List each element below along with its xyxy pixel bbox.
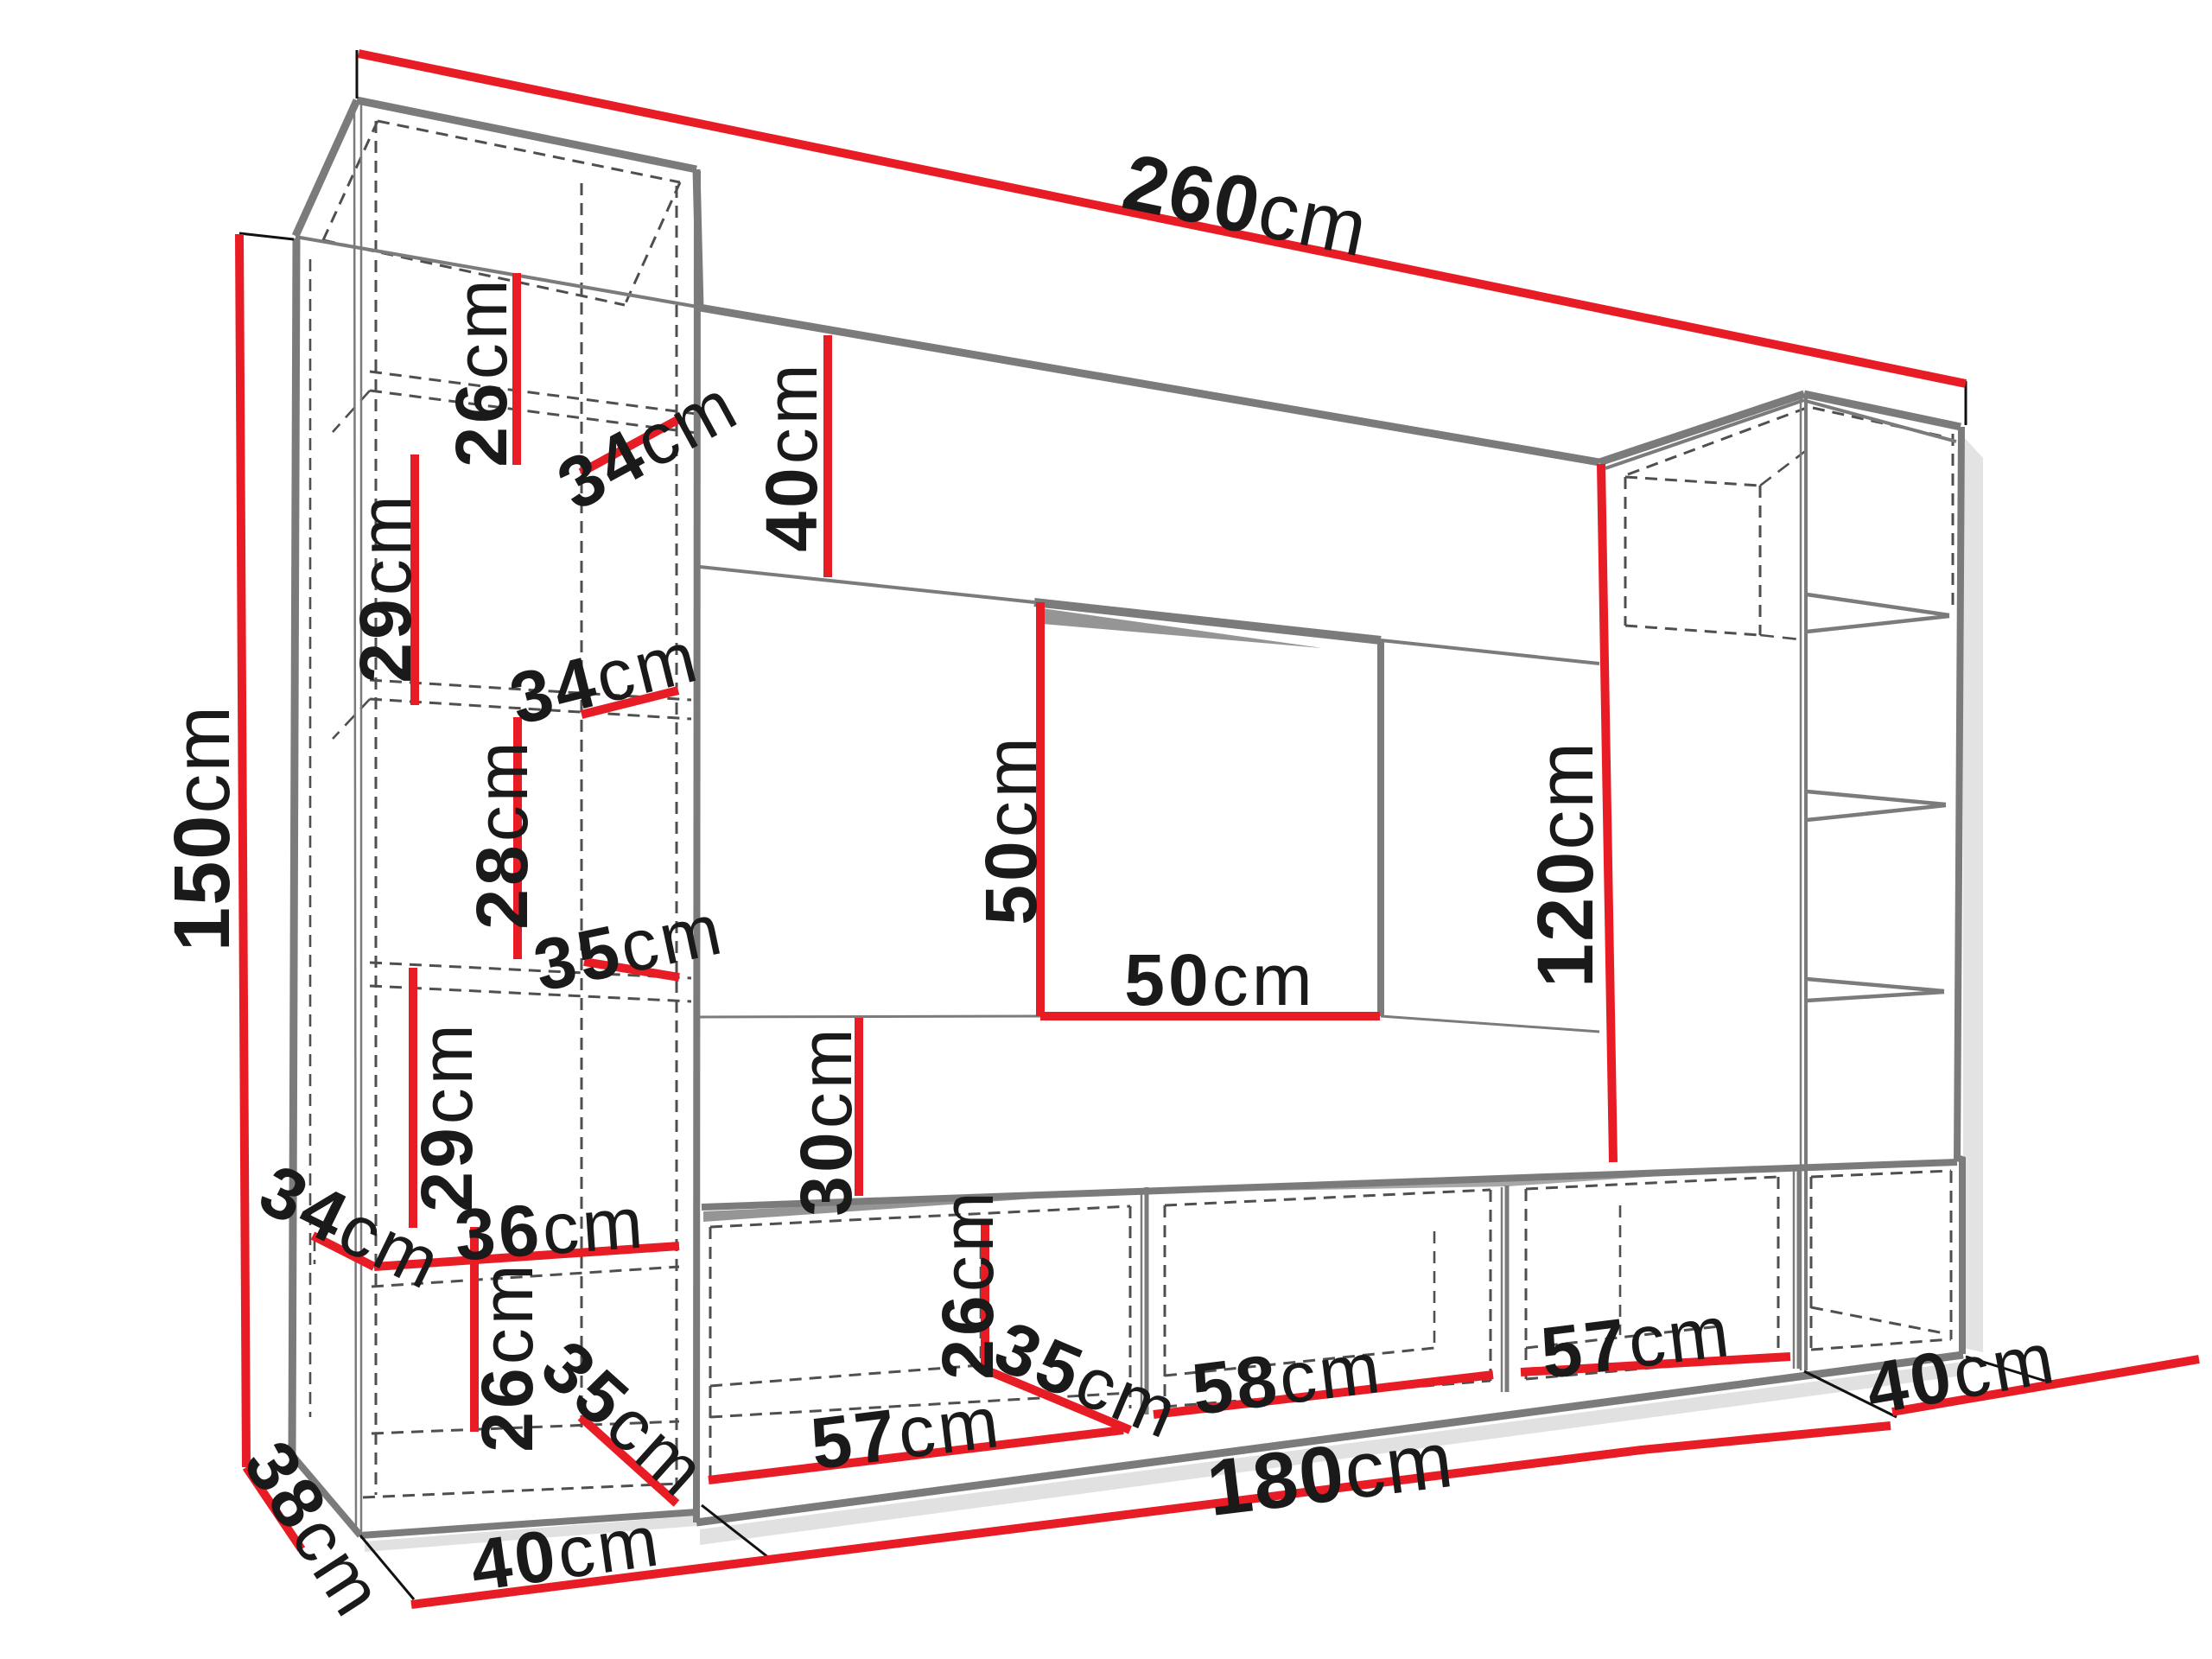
svg-text:30cm: 30cm — [785, 1025, 867, 1216]
svg-text:50cm: 50cm — [970, 734, 1052, 925]
svg-text:50cm: 50cm — [1124, 939, 1315, 1020]
svg-text:29cm: 29cm — [345, 492, 426, 683]
svg-text:40cm: 40cm — [751, 360, 832, 551]
svg-text:29cm: 29cm — [406, 1020, 487, 1211]
svg-text:120cm: 120cm — [1522, 741, 1610, 988]
svg-text:28cm: 28cm — [461, 738, 543, 929]
svg-text:150cm: 150cm — [158, 704, 246, 951]
svg-text:26cm: 26cm — [467, 1261, 548, 1452]
svg-text:26cm: 26cm — [441, 276, 522, 467]
